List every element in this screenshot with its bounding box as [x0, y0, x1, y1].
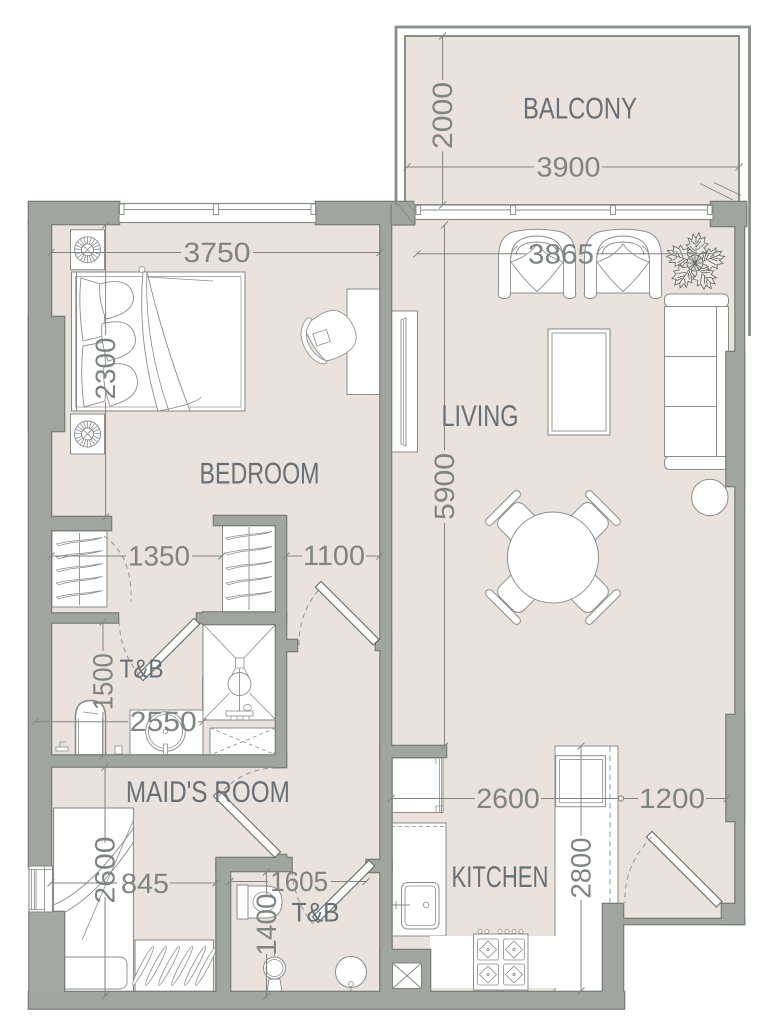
svg-text:T&B: T&B	[292, 898, 340, 928]
svg-text:MAID'S ROOM: MAID'S ROOM	[126, 776, 290, 809]
svg-text:3865: 3865	[528, 238, 594, 269]
svg-text:BALCONY: BALCONY	[523, 93, 637, 126]
svg-text:1200: 1200	[639, 783, 705, 814]
svg-text:845: 845	[121, 868, 169, 899]
svg-text:2550: 2550	[130, 706, 197, 737]
svg-text:LIVING: LIVING	[442, 400, 519, 433]
svg-text:2600: 2600	[476, 783, 540, 814]
svg-text:2000: 2000	[427, 82, 458, 149]
svg-text:1350: 1350	[128, 541, 190, 572]
svg-text:3900: 3900	[537, 152, 601, 183]
svg-text:1400: 1400	[251, 894, 282, 956]
svg-text:2600: 2600	[90, 837, 121, 904]
svg-text:3750: 3750	[184, 237, 251, 268]
svg-text:2300: 2300	[90, 338, 121, 400]
svg-text:BEDROOM: BEDROOM	[200, 458, 320, 491]
svg-text:1500: 1500	[88, 653, 119, 710]
svg-text:5900: 5900	[429, 453, 460, 520]
svg-text:1605: 1605	[270, 866, 328, 897]
svg-text:T&B: T&B	[120, 654, 164, 684]
svg-text:1100: 1100	[303, 540, 365, 571]
svg-text:2800: 2800	[566, 838, 597, 899]
svg-text:KITCHEN: KITCHEN	[452, 861, 549, 894]
